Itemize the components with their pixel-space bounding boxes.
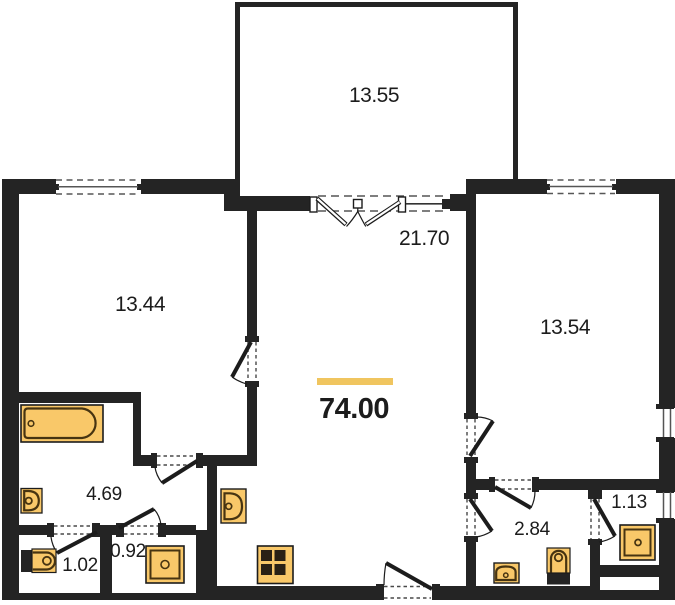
svg-text:74.00: 74.00 xyxy=(319,393,389,425)
svg-text:13.44: 13.44 xyxy=(115,293,166,316)
svg-text:13.54: 13.54 xyxy=(540,316,591,339)
svg-text:0.92: 0.92 xyxy=(110,541,146,562)
svg-text:2.84: 2.84 xyxy=(514,519,551,540)
svg-text:21.70: 21.70 xyxy=(399,227,449,250)
svg-text:13.55: 13.55 xyxy=(349,84,399,107)
svg-text:1.13: 1.13 xyxy=(611,492,647,513)
svg-text:4.69: 4.69 xyxy=(86,484,122,505)
svg-text:1.02: 1.02 xyxy=(62,555,98,576)
